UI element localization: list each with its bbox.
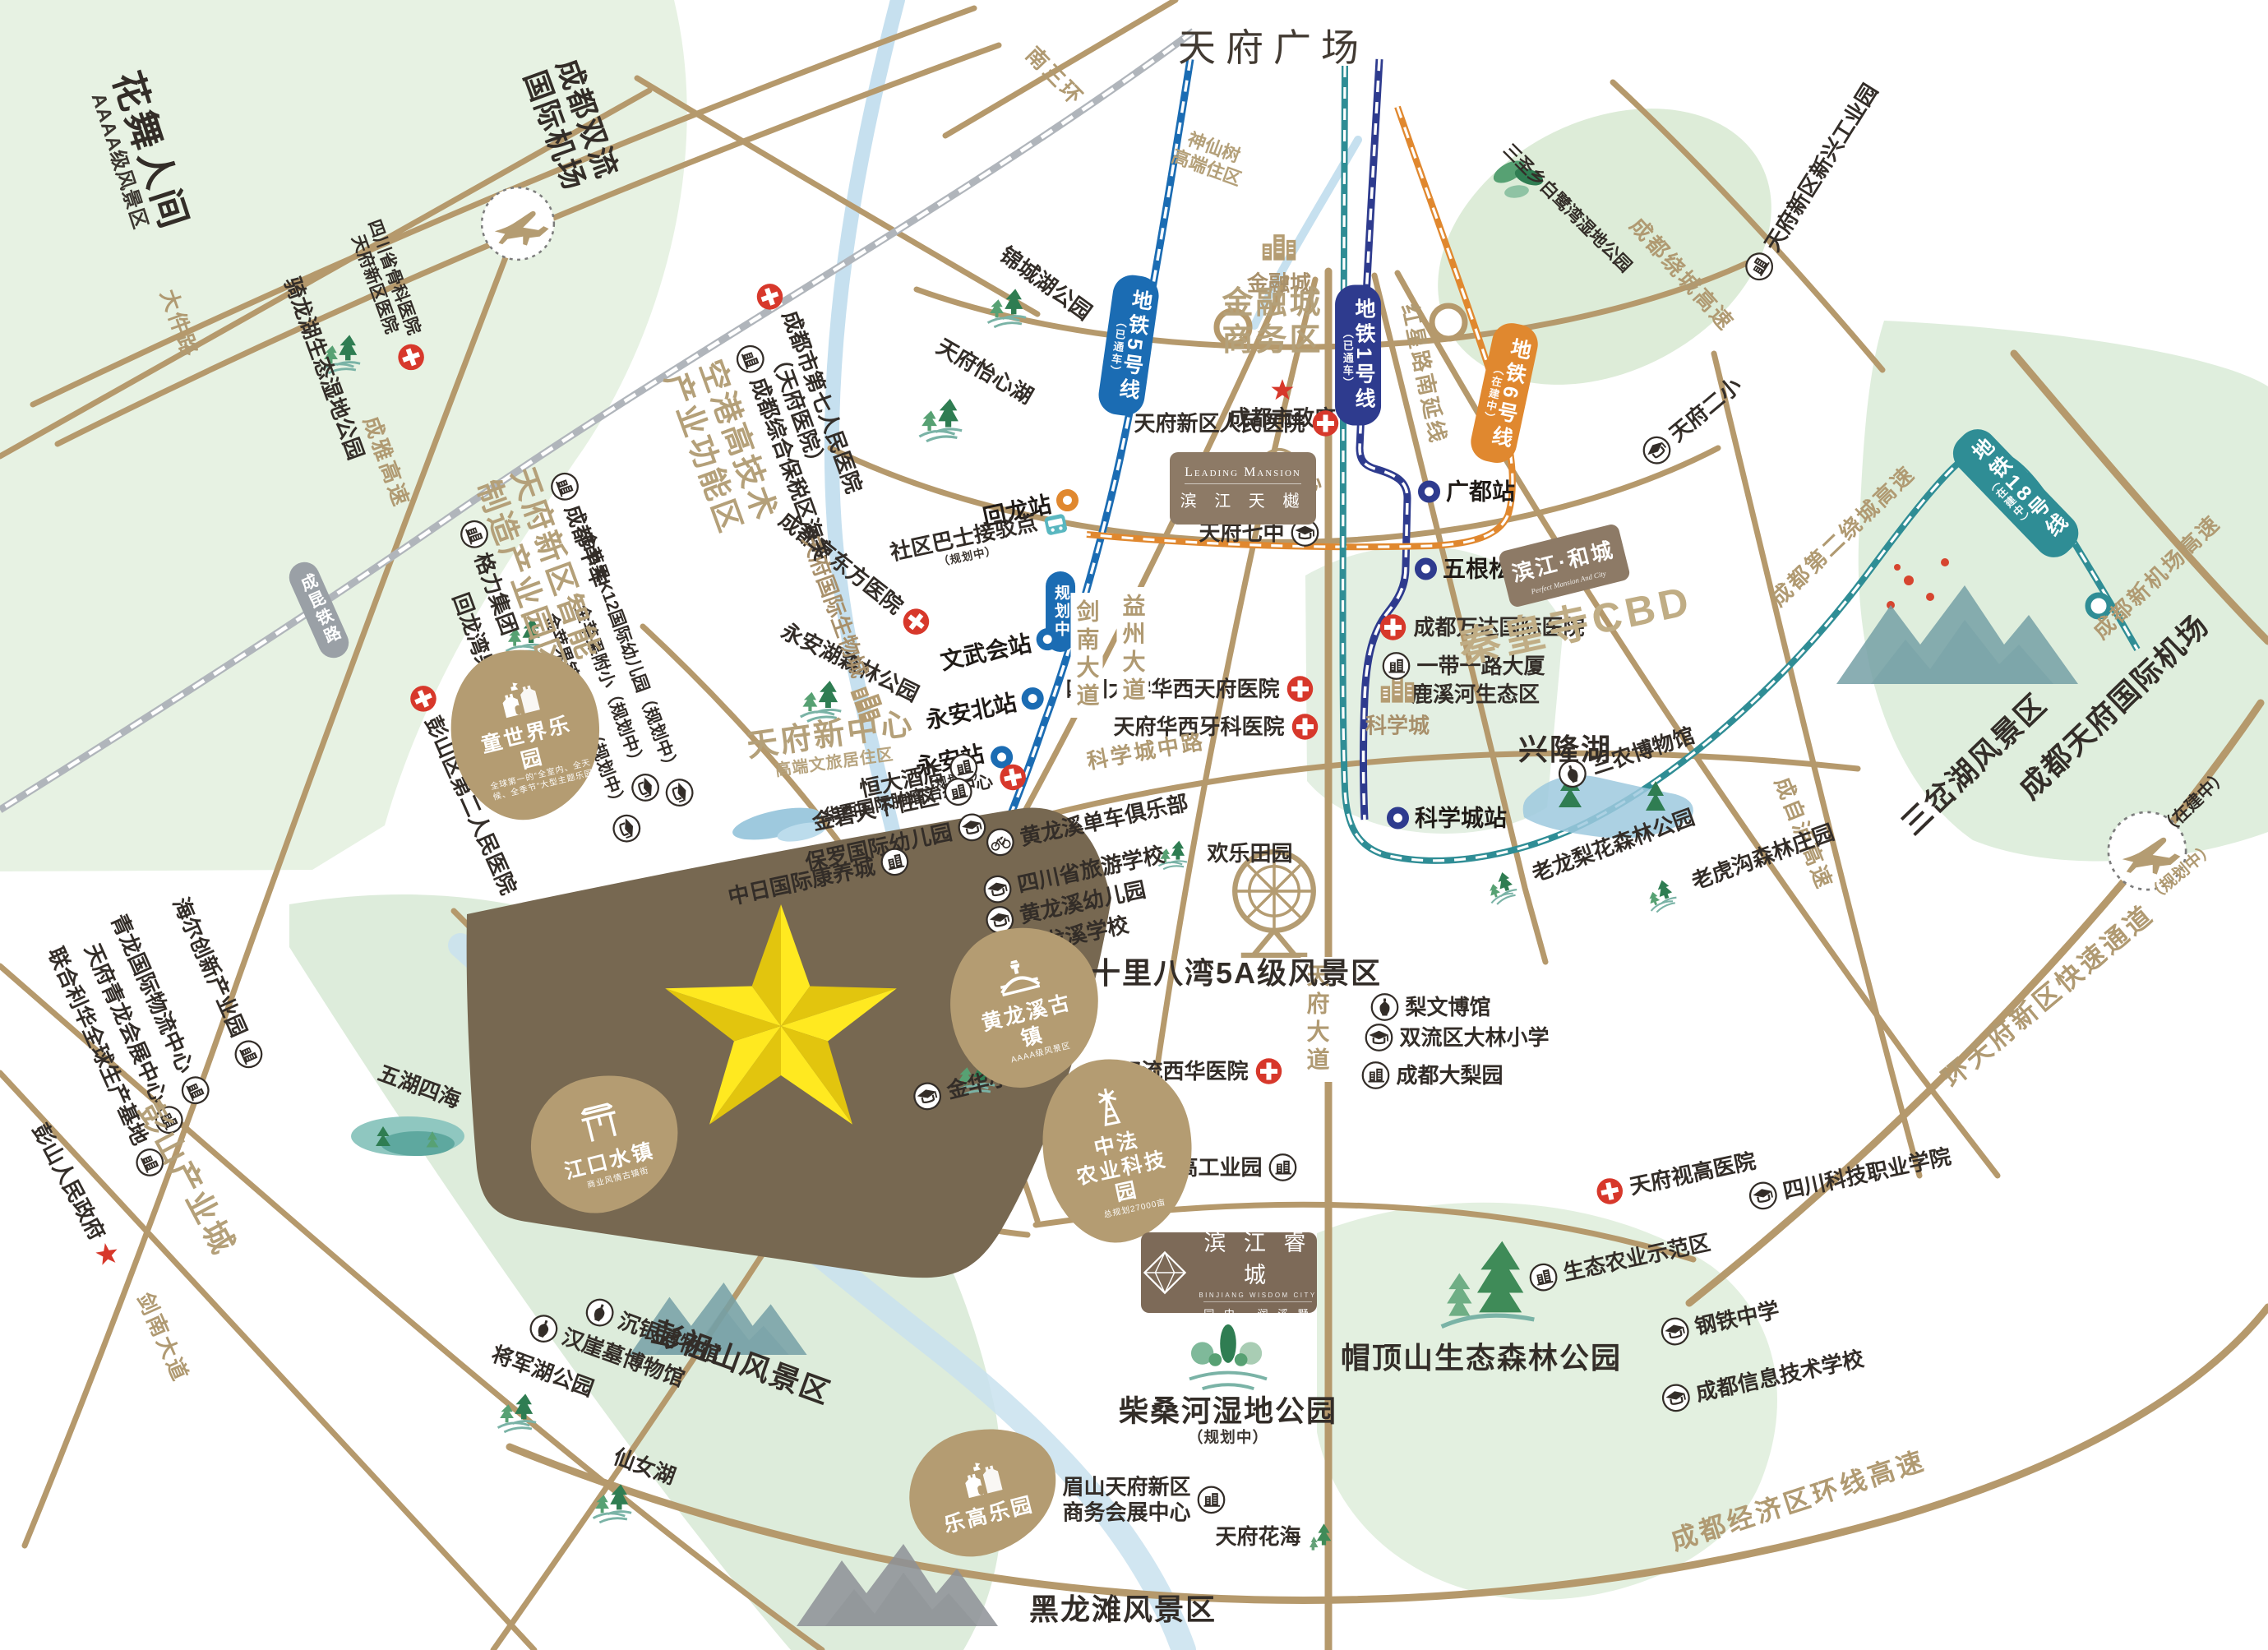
dalin-primary: 双流区大林小学 — [1364, 1023, 1549, 1052]
logo-en-text: BINJIANG WISDOM CITY — [1199, 1292, 1316, 1299]
yonganbei-station: 永安北站 — [923, 683, 1046, 735]
logo-binjiang-tianyue: Leading Mansion 滨 江 天 樾 — [1170, 452, 1316, 525]
school-icon — [1658, 1380, 1693, 1416]
label-text: 天府花海 — [1215, 1524, 1300, 1550]
station-ring-icon — [1019, 686, 1046, 712]
label-text: 帽顶山生态森林公园 — [1341, 1341, 1622, 1375]
label-text: 剑南大道 — [132, 1289, 193, 1386]
tianfu-square: 天府广场 — [1178, 25, 1369, 70]
label-text: 科学城站 — [1415, 804, 1507, 831]
school-icon — [607, 810, 645, 848]
label-text: 益州大道 — [1119, 594, 1146, 705]
label-text: 江口水镇商业风情古镇街 — [555, 1137, 667, 1197]
pengshan-gov: 彭山人民政府 — [27, 1120, 124, 1272]
school-icon — [1657, 1314, 1693, 1349]
road-nansanhuan: 南三环 — [1021, 42, 1089, 111]
logo-binjiang-ruicheng: 滨 江 睿 城 BINJIANG WISDOM CITY 园 中 · 润 溪 墅 — [1141, 1232, 1317, 1313]
label-text: 永安北站 — [923, 689, 1019, 735]
label-text: 地铁6号线（在建中） — [1476, 334, 1532, 452]
label-text: 成都大梨园 — [1396, 1063, 1503, 1088]
label-text: 成都绕城高速 — [1624, 213, 1739, 336]
logo-tagline: 园 中 · 润 溪 墅 — [1203, 1301, 1311, 1321]
label-text: 柴桑河湿地公园（规划中） — [1119, 1394, 1337, 1448]
castle-icon — [489, 669, 545, 725]
road-yizhou: 益州大道 — [1116, 587, 1148, 712]
road-economic-ring: 成都经济区环线高速 — [1667, 1445, 1930, 1557]
xiannvhu: 仙女湖 — [610, 1444, 679, 1490]
jinchenghu-park: 锦城湖公园 — [995, 242, 1096, 325]
heilongtan-scenic: 黑龙滩风景区 — [1029, 1592, 1217, 1627]
label-subtext: （已通车） — [1342, 305, 1353, 413]
scu-huaxi-hospital: 四川大学华西天府医院 — [1065, 674, 1314, 704]
label-text: 天府新区人民医院 — [1134, 411, 1305, 437]
label-text: 成都第二绕城高速 — [1766, 460, 1920, 611]
building-icon — [940, 774, 976, 810]
caisanghe-park: 柴桑河湿地公园（规划中） — [1119, 1394, 1337, 1448]
sichuan-ortho-hospital: 四川省骨科医院天府新区医院 — [344, 217, 436, 377]
school-icon — [1364, 1023, 1393, 1052]
label-subtext: （规划中） — [1119, 1429, 1337, 1447]
label-text: 黄龙溪古镇AAAA级风景区 — [972, 989, 1091, 1072]
kexuecheng-station: 科学城站 — [1387, 804, 1507, 831]
building-icon — [176, 1070, 215, 1110]
liwen-museum: 梨文博馆 — [1370, 992, 1490, 1022]
label-text: 黑龙滩风景区 — [1029, 1592, 1217, 1627]
tianfu-dental-hospital: 天府华西牙科医院 — [1113, 712, 1319, 742]
school-icon — [980, 871, 1015, 907]
building-icon — [877, 844, 912, 880]
label-text: 梨文博馆 — [1405, 995, 1490, 1020]
label-text: 红星路南延线 — [1397, 302, 1451, 447]
label-text: 文武会站 — [938, 630, 1033, 676]
label-text: （在建中） — [2157, 766, 2233, 841]
metro18-badge: 地铁18号线（在建中） — [1945, 421, 2086, 565]
label-text: 中法农业科技园总规划27000亩 — [1062, 1122, 1184, 1226]
building-icon — [1268, 1153, 1298, 1182]
label-text: 生态农业示范区 — [1561, 1230, 1712, 1286]
label-text: 花舞人间AAAA级风景区 — [82, 66, 197, 243]
wuhusihai: 五湖四海 — [375, 1061, 464, 1113]
cross-icon — [1291, 712, 1320, 742]
guangdu-station: 广都站 — [1418, 478, 1515, 505]
station-ring-icon — [1387, 807, 1409, 830]
label-text: 中日国际康养城 — [726, 854, 877, 910]
road-huan-tianfu: 环天府新区快速通道 — [1937, 899, 2160, 1093]
sc-tech-college: 四川科技职业学院 — [1745, 1141, 1953, 1213]
redstar-icon — [90, 1238, 124, 1272]
shenxianshu-area: 神仙树高端住区 — [1169, 126, 1251, 191]
label-text: 欢乐田园 — [1207, 841, 1292, 867]
road-second-ring: 成都第二绕城高速 — [1766, 460, 1920, 611]
label-text: 地铁5号线（已通车） — [1105, 286, 1153, 404]
road-raocheng: 成都绕城高速 — [1624, 213, 1739, 336]
school-icon — [909, 1079, 945, 1115]
museum-icon — [524, 1310, 562, 1347]
logo-cn-text: 滨 江 睿 城 — [1199, 1225, 1317, 1289]
tfxq-peoples-hospital: 天府新区人民医院 — [1134, 409, 1340, 438]
logo-cn-text: 滨 江 天 樾 — [1180, 488, 1306, 511]
blob-jiangkou: 江口水镇商业风情古镇街 — [516, 1060, 694, 1227]
label-text: 四川省骨科医院天府新区医院 — [344, 217, 423, 344]
road-hongxing: 红星路南延线 — [1397, 302, 1451, 447]
label-text: 地铁1号线（已通车） — [1342, 298, 1374, 413]
school-icon — [660, 774, 698, 811]
chengdu-daliyuan: 成都大梨园 — [1360, 1061, 1503, 1090]
map-labels: 天府广场南三环神仙树高端住区金融城金融城商务区成都市政府环球中心红星路南延线三圣… — [0, 0, 2268, 1650]
school-icon — [1745, 1178, 1781, 1213]
tianfu-yixinhu: 天府怡心湖 — [932, 334, 1037, 409]
gangtie-middle-school: 钢铁中学 — [1657, 1295, 1781, 1349]
label-text: 眉山天府新区商务会展中心 — [1062, 1474, 1190, 1524]
label-text: 天府广场 — [1178, 25, 1369, 70]
label-text: 骑龙湖生态湿地公园 — [279, 274, 369, 463]
laketree-icon — [1473, 859, 1534, 912]
label-text: 大件路 — [155, 286, 204, 362]
laketree-icon — [1633, 867, 1693, 919]
label-text: 童世界乐园全球第一的“全室内、全天候、全季节”大型主题乐园 — [472, 711, 593, 805]
label-text: 金融城商务区 — [1222, 285, 1323, 359]
label-text: 仙女湖 — [610, 1444, 679, 1490]
label-text: 成都信息技术学校 — [1693, 1346, 1866, 1406]
road-dajian: 大件路 — [155, 286, 204, 362]
bridge-icon — [990, 948, 1046, 1004]
metro5-badge: 地铁5号线（已通车） — [1096, 272, 1161, 418]
sanshengxiang-park: 三圣乡白鹭湾湿地公园 — [1499, 141, 1635, 277]
label-text: 钢铁中学 — [1693, 1297, 1781, 1340]
building-icon — [1526, 1259, 1561, 1295]
qilonghu-wetland: 骑龙湖生态湿地公园 — [279, 274, 369, 463]
label-text: 五湖四海 — [375, 1061, 464, 1113]
station-ring-icon — [1415, 558, 1437, 580]
diamond-logo-icon — [1141, 1249, 1189, 1296]
cross-icon — [1311, 409, 1341, 438]
label-text: 地铁18号线（在建中） — [1959, 435, 2072, 551]
label-text: 天府怡心湖 — [932, 334, 1037, 409]
museum-icon — [1370, 992, 1399, 1022]
bus-icon — [1042, 511, 1071, 540]
tianfu-huahai: 天府花海 — [1215, 1519, 1341, 1554]
label-text: 成都经济区环线高速 — [1667, 1445, 1930, 1557]
label-text: 南三环 — [1021, 42, 1089, 111]
logo-en-text: Leading Mansion — [1185, 465, 1301, 484]
label-text: 广都站 — [1446, 478, 1515, 505]
label-text: 彭山人民政府 — [27, 1120, 109, 1245]
luxihe-eco-zone: 鹿溪河生态区 — [1411, 682, 1540, 708]
cross-icon — [895, 601, 937, 643]
label-text: 成昆铁路 — [296, 572, 343, 649]
building-icon — [1739, 246, 1780, 287]
xinglonghu: 兴隆湖 — [1518, 733, 1612, 767]
label-text: 剑南大道 — [1073, 599, 1100, 711]
bike-icon — [982, 825, 1018, 860]
shuangliu-airport: 成都双流国际机场 — [516, 54, 625, 196]
bus-transfer-stop: 社区巴士接驳点（规划中） — [888, 503, 1072, 578]
cross-icon — [995, 760, 1031, 795]
eco-agri-demo-zone: 生态农业示范区 — [1526, 1227, 1713, 1295]
road-chengya: 成雅高速 — [358, 413, 415, 511]
tree-icon — [1307, 1519, 1342, 1554]
meishan-expo-center: 眉山天府新区商务会展中心 — [1062, 1474, 1226, 1524]
cd-info-tech-school: 成都信息技术学校 — [1658, 1343, 1866, 1415]
cross-icon — [1254, 1056, 1284, 1086]
building-icon — [1197, 1485, 1226, 1514]
road-jiannan-south: 剑南大道 — [132, 1289, 193, 1386]
financial-cbd: 金融城商务区 — [1222, 285, 1323, 359]
huawu-renjian: 花舞人间AAAA级风景区 — [82, 66, 197, 243]
station-ring-icon — [1418, 481, 1440, 503]
building-icon — [229, 1035, 269, 1075]
cross-icon — [1378, 612, 1407, 642]
label-text: 科学城 — [1365, 714, 1430, 739]
label-text: （规划中） — [2144, 839, 2219, 907]
station-ring-icon — [1034, 626, 1060, 653]
label-text: 双流区大林小学 — [1399, 1025, 1549, 1051]
buildgold-icon — [1257, 224, 1301, 268]
building-icon — [1381, 651, 1411, 681]
wugensong-station: 五根松 — [1415, 555, 1512, 582]
cross-icon — [1592, 1174, 1628, 1209]
label-text: 海尔创新产业园 — [168, 894, 252, 1041]
metro6-badge: 地铁6号线（在建中） — [1467, 320, 1541, 467]
building-icon — [1360, 1061, 1390, 1090]
metro1-badge: 地铁1号线（已通车） — [1335, 285, 1381, 426]
label-text: 社区巴士接驳点（规划中） — [888, 510, 1042, 578]
tianfu-erxiao: 天府二小 — [1636, 371, 1748, 471]
shilibawan-scenic: 十里八湾5A级风景区 — [1091, 956, 1382, 991]
label-text: 环天府新区快速通道 — [1937, 899, 2160, 1093]
building-icon — [546, 468, 584, 506]
label-text: 成雅高速 — [358, 413, 415, 511]
label-text: 神仙树高端住区 — [1169, 126, 1251, 191]
wenwuhui-station: 文武会站 — [938, 624, 1061, 676]
cross-icon — [392, 338, 430, 376]
road-jiannan: 剑南大道 — [1070, 593, 1102, 718]
cross-icon — [751, 278, 789, 316]
maodingshan-park: 帽顶山生态森林公园 — [1341, 1341, 1622, 1375]
blob-lego: 乐高乐园 — [895, 1413, 1070, 1569]
label-text: 天府视高医院 — [1628, 1148, 1758, 1199]
tf-shigao-hospital: 天府视高医院 — [1592, 1146, 1758, 1209]
label-text: 三圣乡白鹭湾湿地公园 — [1499, 141, 1635, 277]
label-text: 天府二小 — [1665, 372, 1746, 446]
label-text: 十里八湾5A级风景区 — [1091, 956, 1382, 991]
cross-icon — [404, 679, 443, 719]
road-huan-tianfu-status: （规划中） — [2144, 839, 2219, 907]
label-text: 鹿溪河生态区 — [1411, 682, 1540, 708]
label-text: 兴隆湖 — [1518, 733, 1612, 767]
label-text: 天府新区新兴工业园 — [1759, 79, 1882, 256]
cross-icon — [1286, 674, 1315, 704]
tianfu-airport-status: （在建中） — [2157, 766, 2233, 841]
museum-icon — [581, 1293, 619, 1331]
label-text: 锦城湖公园 — [995, 242, 1096, 325]
gate-icon — [572, 1096, 628, 1152]
redstar-icon — [1270, 378, 1295, 403]
huanle-tianyuan: 欢乐田园 — [1150, 834, 1292, 872]
chengkun-railway-badge: 成昆铁路 — [284, 557, 353, 663]
label-text: 成都双流国际机场 — [516, 54, 625, 196]
label-text: 四川科技职业学院 — [1781, 1144, 1953, 1204]
castle-icon — [952, 1449, 1008, 1505]
xinxing-industrial-park: 天府新区新兴工业园 — [1739, 78, 1884, 287]
map-canvas: 天府广场南三环神仙树高端住区金融城金融城商务区成都市政府环球中心红星路南延线三圣… — [0, 0, 2268, 1650]
windmill-icon — [1082, 1079, 1136, 1134]
